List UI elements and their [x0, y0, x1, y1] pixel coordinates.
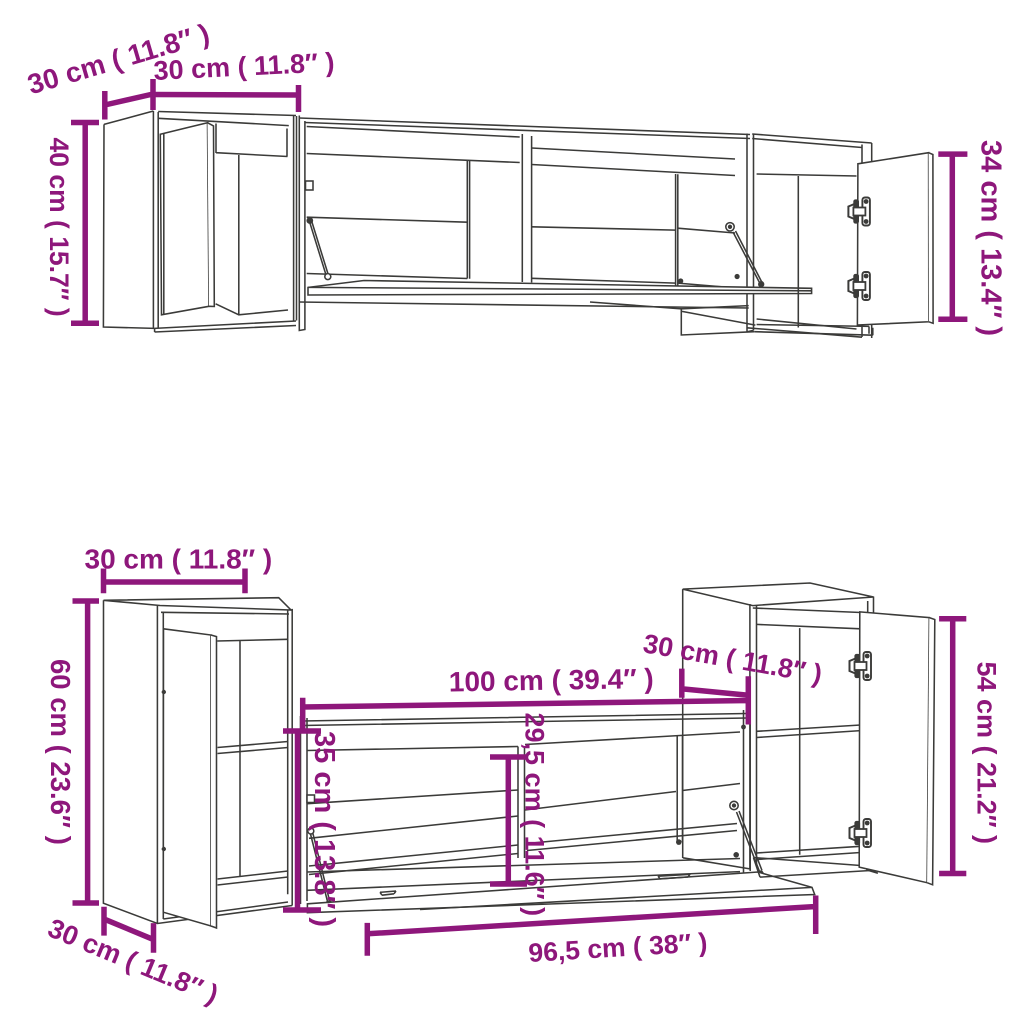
svg-text:54 cm ( 21.2″ ): 54 cm ( 21.2″ ) [972, 662, 1002, 845]
svg-text:29,5 cm ( 11.6″ ): 29,5 cm ( 11.6″ ) [520, 713, 550, 917]
svg-text:40 cm ( 15.7″ ): 40 cm ( 15.7″ ) [44, 138, 74, 317]
svg-text:30 cm ( 11.8″ ): 30 cm ( 11.8″ ) [641, 628, 825, 689]
svg-text:35 cm ( 13.8″ ): 35 cm ( 13.8″ ) [308, 731, 340, 927]
svg-text:100 cm ( 39.4″ ): 100 cm ( 39.4″ ) [449, 663, 654, 698]
svg-text:96,5 cm ( 38″ ): 96,5 cm ( 38″ ) [528, 927, 709, 968]
svg-text:60 cm ( 23.6″ ): 60 cm ( 23.6″ ) [45, 659, 76, 845]
svg-text:34 cm ( 13.4″ ): 34 cm ( 13.4″ ) [975, 140, 1007, 336]
svg-text:30 cm ( 11.8″ ): 30 cm ( 11.8″ ) [44, 913, 223, 1010]
svg-text:30 cm ( 11.8″ ): 30 cm ( 11.8″ ) [85, 544, 273, 575]
